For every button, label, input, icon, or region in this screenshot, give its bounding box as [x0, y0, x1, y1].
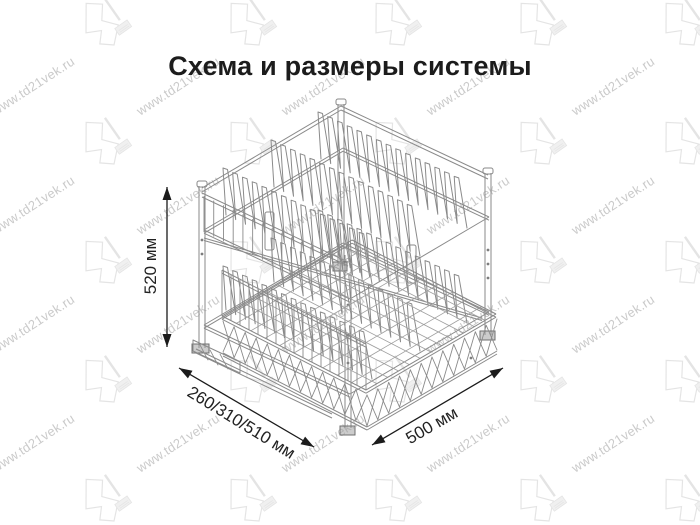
- frame-group: [192, 99, 495, 435]
- page-title: Схема и размеры системы: [0, 51, 700, 82]
- screenshot-root: www.td21vek.ruwww.td21vek.ruwww.td21vek.…: [0, 0, 700, 525]
- upper-rack-tier: [204, 112, 489, 302]
- dimension-label-height: 520 мм: [141, 238, 161, 294]
